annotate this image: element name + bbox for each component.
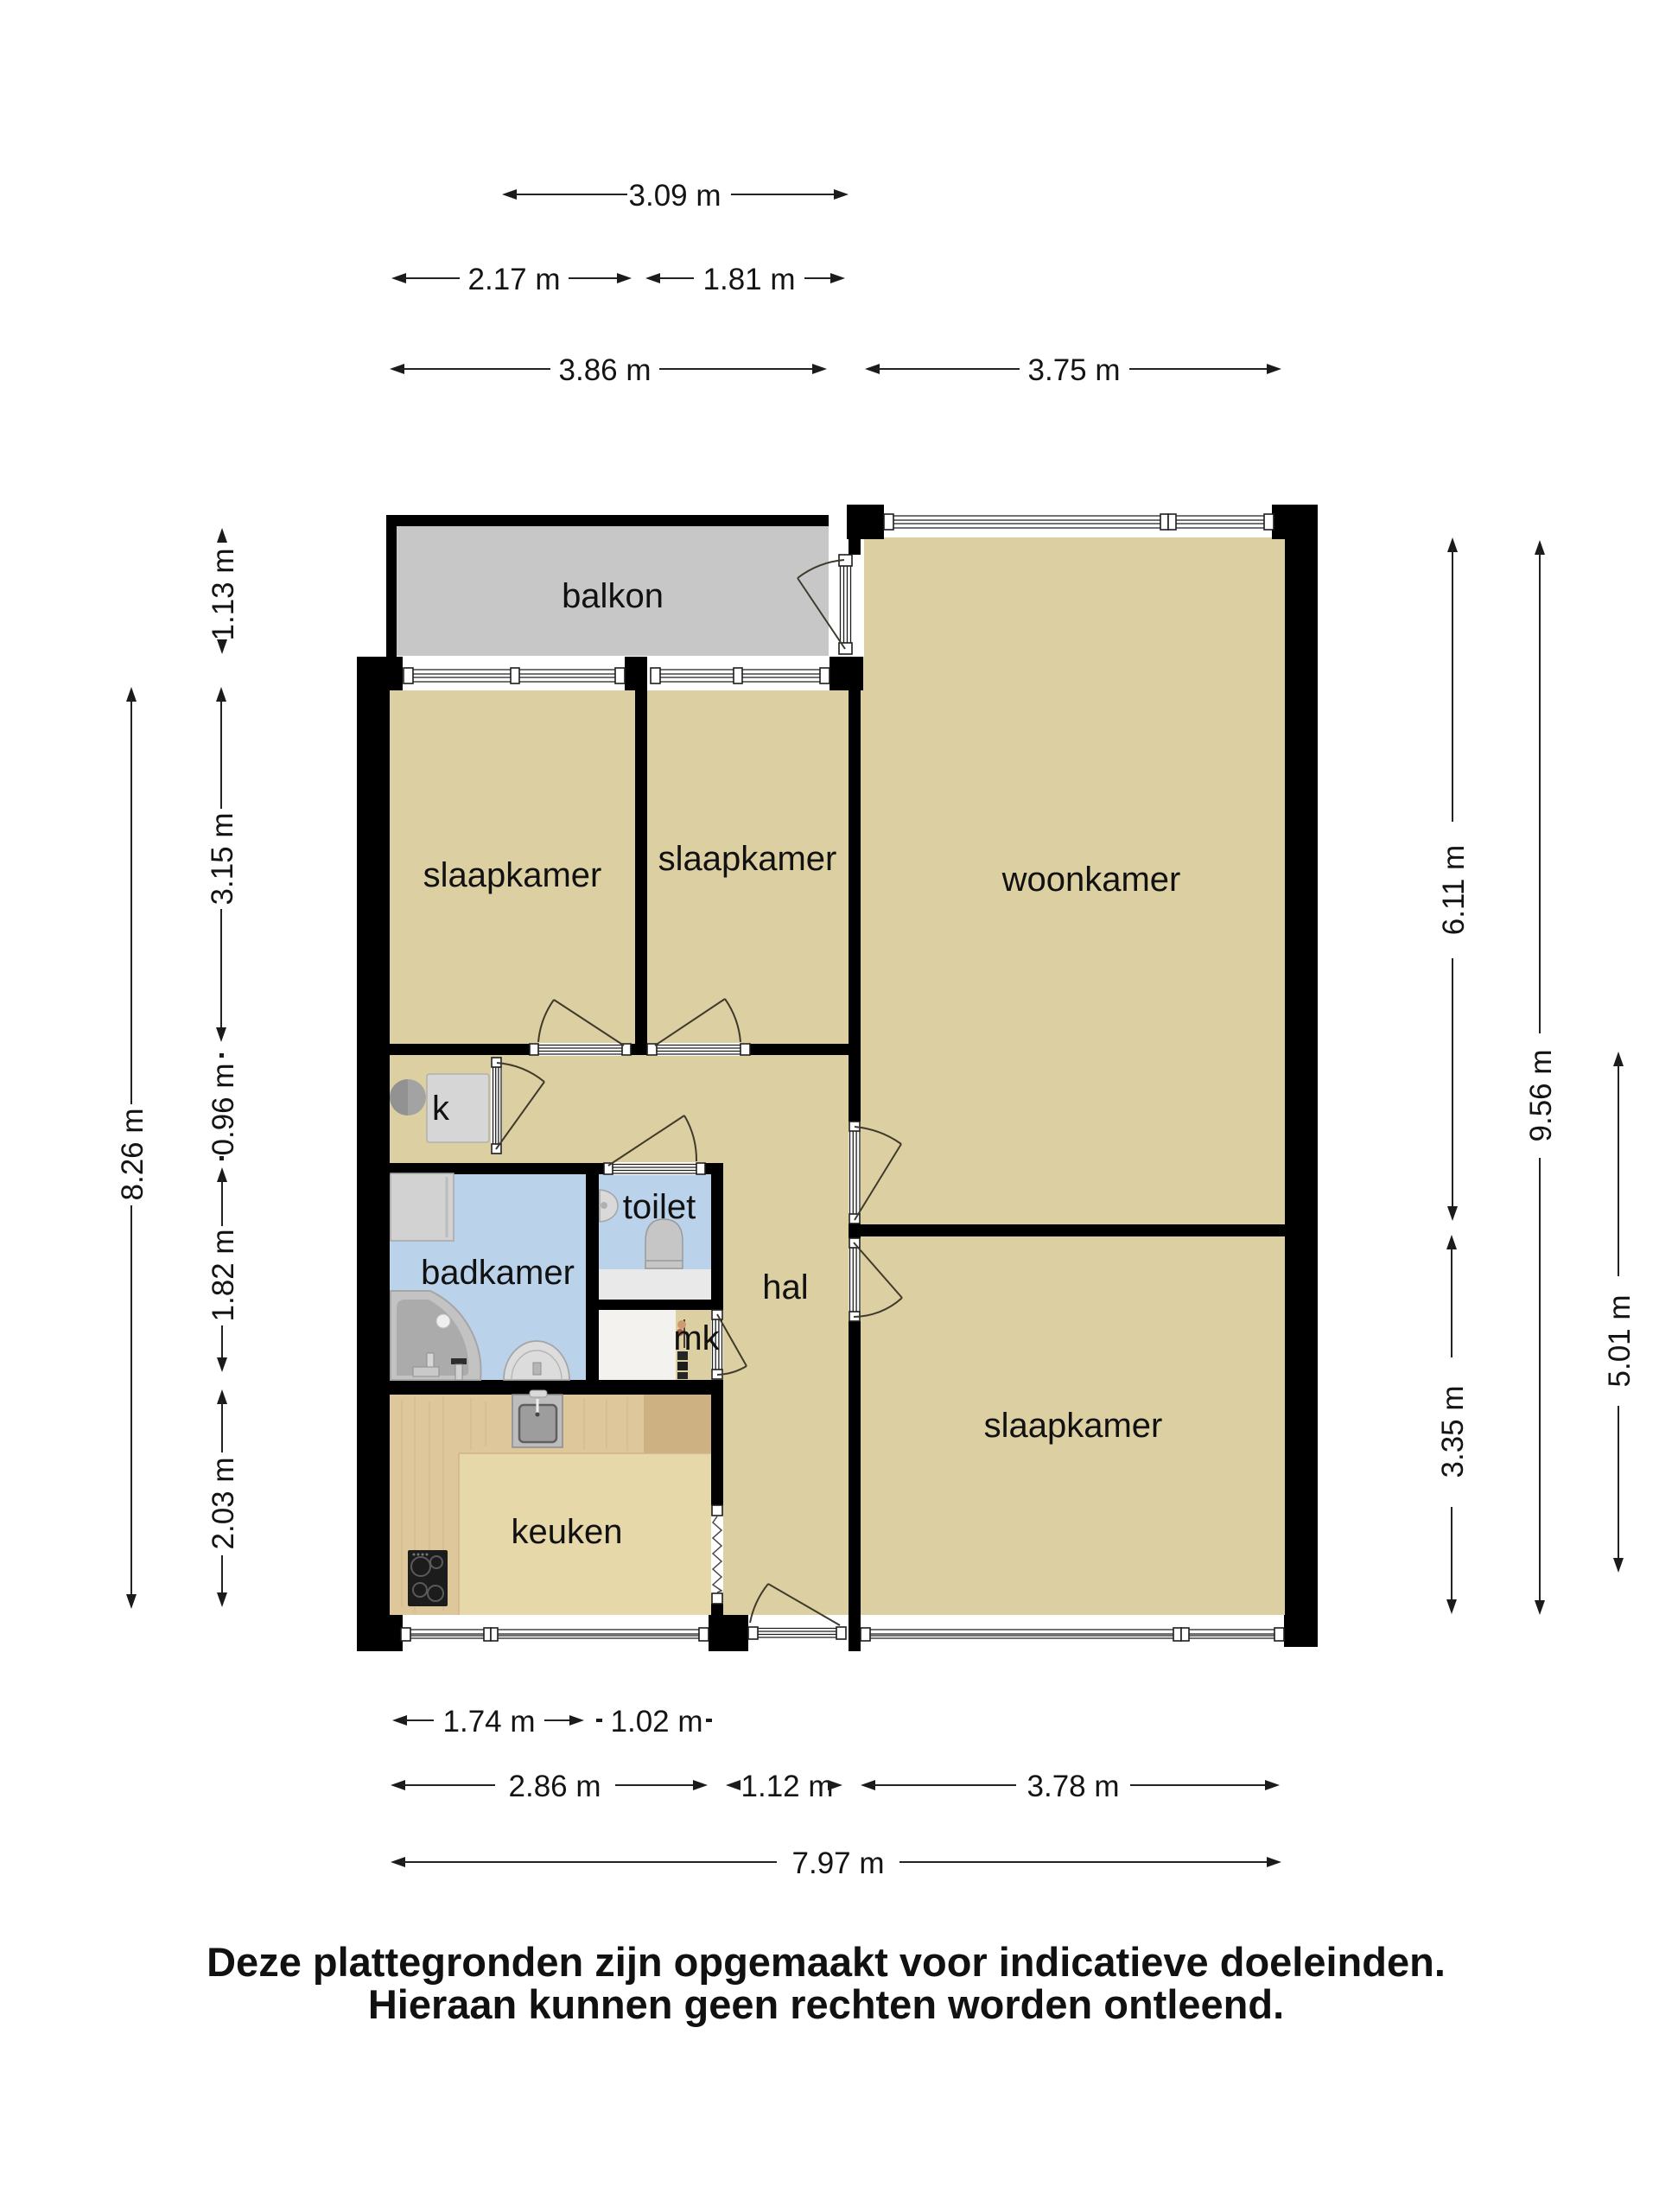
svg-text:3.75 m: 3.75 m xyxy=(1028,353,1121,387)
svg-text:5.01 m: 5.01 m xyxy=(1603,1295,1637,1388)
svg-text:3.15 m: 3.15 m xyxy=(206,813,239,906)
svg-text:slaapkamer: slaapkamer xyxy=(423,856,602,894)
svg-text:0.96 m: 0.96 m xyxy=(207,1064,240,1156)
svg-text:6.11 m: 6.11 m xyxy=(1437,845,1471,935)
svg-text:1.13 m: 1.13 m xyxy=(207,549,240,641)
svg-text:3.09 m: 3.09 m xyxy=(629,179,721,213)
svg-text:3.78 m: 3.78 m xyxy=(1027,1770,1120,1803)
svg-text:1.02 m: 1.02 m xyxy=(611,1705,703,1738)
svg-text:hal: hal xyxy=(762,1268,808,1306)
svg-text:1.12 m: 1.12 m xyxy=(741,1770,834,1803)
svg-text:balkon: balkon xyxy=(562,577,664,615)
svg-text:Deze plattegronden zijn opgema: Deze plattegronden zijn opgemaakt voor i… xyxy=(207,1939,1446,1985)
svg-text:slaapkamer: slaapkamer xyxy=(658,840,837,878)
svg-text:toilet: toilet xyxy=(623,1188,696,1226)
svg-text:9.56 m: 9.56 m xyxy=(1524,1050,1558,1142)
svg-text:7.97 m: 7.97 m xyxy=(792,1847,885,1880)
svg-text:1.74 m: 1.74 m xyxy=(443,1705,536,1738)
svg-text:mk: mk xyxy=(673,1319,720,1357)
svg-text:k: k xyxy=(432,1090,450,1128)
svg-text:Hieraan kunnen geen rechten wo: Hieraan kunnen geen rechten worden ontle… xyxy=(368,1981,1284,2027)
svg-text:woonkamer: woonkamer xyxy=(1001,861,1181,899)
svg-text:1.82 m: 1.82 m xyxy=(207,1230,240,1322)
svg-text:1.81 m: 1.81 m xyxy=(703,263,796,296)
svg-text:slaapkamer: slaapkamer xyxy=(984,1407,1163,1445)
svg-text:keuken: keuken xyxy=(512,1513,623,1551)
svg-text:8.26 m: 8.26 m xyxy=(116,1109,149,1201)
svg-text:3.86 m: 3.86 m xyxy=(559,353,652,387)
svg-text:2.03 m: 2.03 m xyxy=(207,1458,240,1550)
svg-text:3.35 m: 3.35 m xyxy=(1436,1386,1470,1478)
svg-text:2.86 m: 2.86 m xyxy=(509,1770,601,1803)
svg-text:2.17 m: 2.17 m xyxy=(468,263,561,296)
svg-text:badkamer: badkamer xyxy=(421,1254,575,1292)
